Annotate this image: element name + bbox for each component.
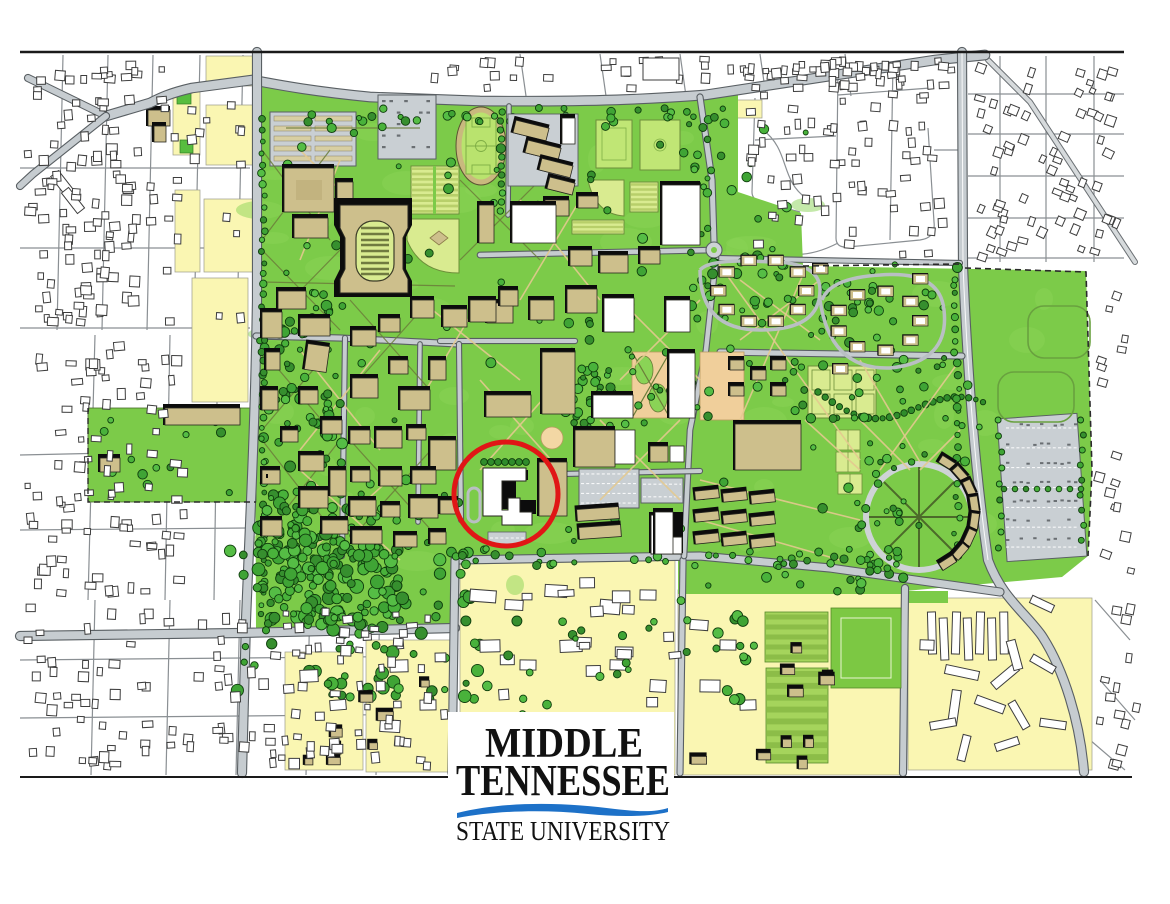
svg-text:TENNESSEE: TENNESSEE	[456, 756, 670, 805]
svg-text:STATE UNIVERSITY: STATE UNIVERSITY	[456, 816, 670, 846]
